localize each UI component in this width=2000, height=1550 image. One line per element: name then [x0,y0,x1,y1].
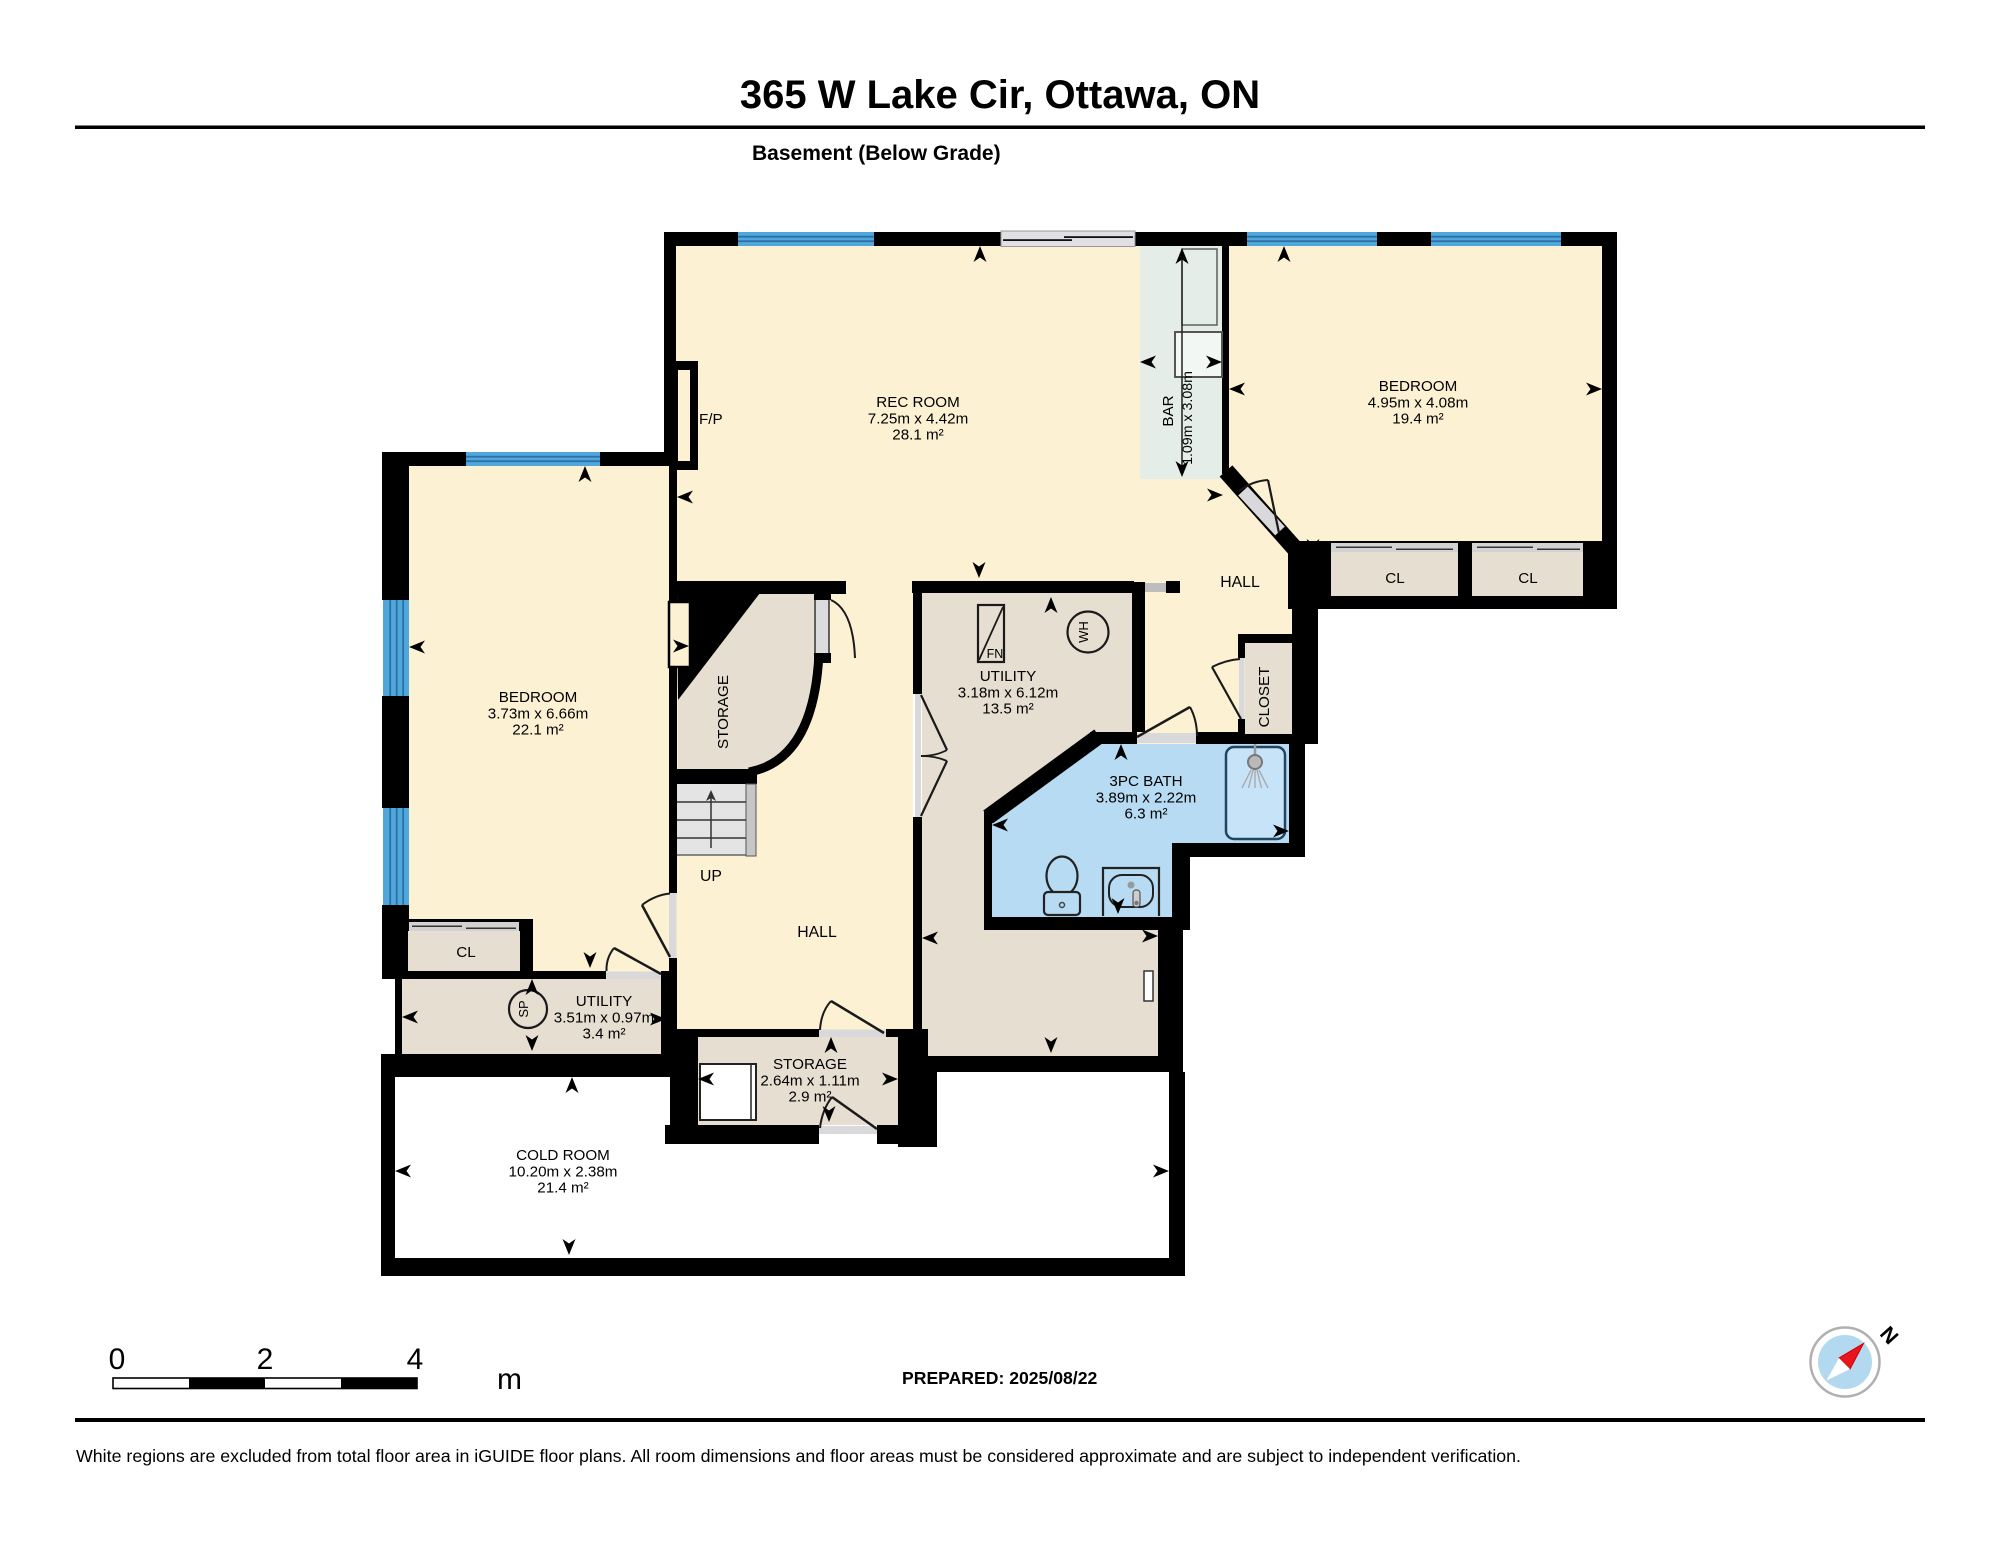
svg-text:BEDROOM: BEDROOM [499,689,577,706]
svg-text:REC ROOM: REC ROOM [876,394,960,411]
svg-text:2.64m x 1.11m: 2.64m x 1.11m [760,1072,859,1089]
svg-text:0: 0 [109,1343,126,1376]
svg-text:SP: SP [516,1000,531,1017]
svg-text:HALL: HALL [797,924,837,941]
svg-text:White regions are excluded fro: White regions are excluded from total fl… [76,1446,1521,1466]
svg-text:3.73m x 6.66m: 3.73m x 6.66m [488,705,588,722]
svg-text:4.95m x 4.08m: 4.95m x 4.08m [1368,394,1468,411]
svg-text:UTILITY: UTILITY [980,668,1037,685]
svg-text:BAR: BAR [1160,395,1177,426]
svg-text:STORAGE: STORAGE [773,1056,847,1073]
svg-text:UTILITY: UTILITY [576,993,633,1010]
svg-text:28.1 m²: 28.1 m² [892,427,944,444]
svg-text:3.18m x 6.12m: 3.18m x 6.12m [958,684,1058,701]
svg-text:STORAGE: STORAGE [715,675,732,749]
svg-text:CL: CL [1518,570,1537,587]
svg-text:19.4 m²: 19.4 m² [1392,411,1444,428]
svg-text:365 W Lake Cir, Ottawa, ON: 365 W Lake Cir, Ottawa, ON [740,73,1260,117]
svg-text:4: 4 [407,1343,424,1376]
svg-text:2: 2 [257,1343,274,1376]
svg-text:Basement (Below Grade): Basement (Below Grade) [752,142,1001,165]
svg-text:BEDROOM: BEDROOM [1379,378,1457,395]
svg-text:CL: CL [1385,570,1404,587]
svg-text:PREPARED: 2025/08/22: PREPARED: 2025/08/22 [902,1368,1097,1388]
svg-text:FN: FN [987,647,1004,661]
svg-text:3PC BATH: 3PC BATH [1109,773,1182,790]
svg-text:6.3 m²: 6.3 m² [1124,806,1167,823]
svg-text:7.25m x 4.42m: 7.25m x 4.42m [868,410,968,427]
svg-text:UP: UP [700,868,722,885]
svg-text:F/P: F/P [699,411,723,428]
svg-text:CL: CL [456,944,475,961]
svg-text:21.4 m²: 21.4 m² [537,1180,589,1197]
svg-text:22.1 m²: 22.1 m² [512,722,564,739]
svg-text:CLOSET: CLOSET [1256,667,1273,728]
svg-text:m: m [497,1363,522,1396]
svg-text:10.20m x 2.38m: 10.20m x 2.38m [509,1163,618,1180]
svg-text:WH: WH [1076,621,1091,643]
svg-text:COLD ROOM: COLD ROOM [516,1147,610,1164]
svg-text:3.4 m²: 3.4 m² [582,1026,625,1043]
svg-text:3.89m x 2.22m: 3.89m x 2.22m [1096,789,1196,806]
svg-text:3.51m x 0.97m: 3.51m x 0.97m [554,1009,654,1026]
svg-text:1.09m x 3.08m: 1.09m x 3.08m [1180,371,1196,465]
svg-text:HALL: HALL [1220,574,1260,591]
svg-text:13.5 m²: 13.5 m² [982,701,1034,718]
svg-text:2.9 m²: 2.9 m² [788,1089,831,1106]
